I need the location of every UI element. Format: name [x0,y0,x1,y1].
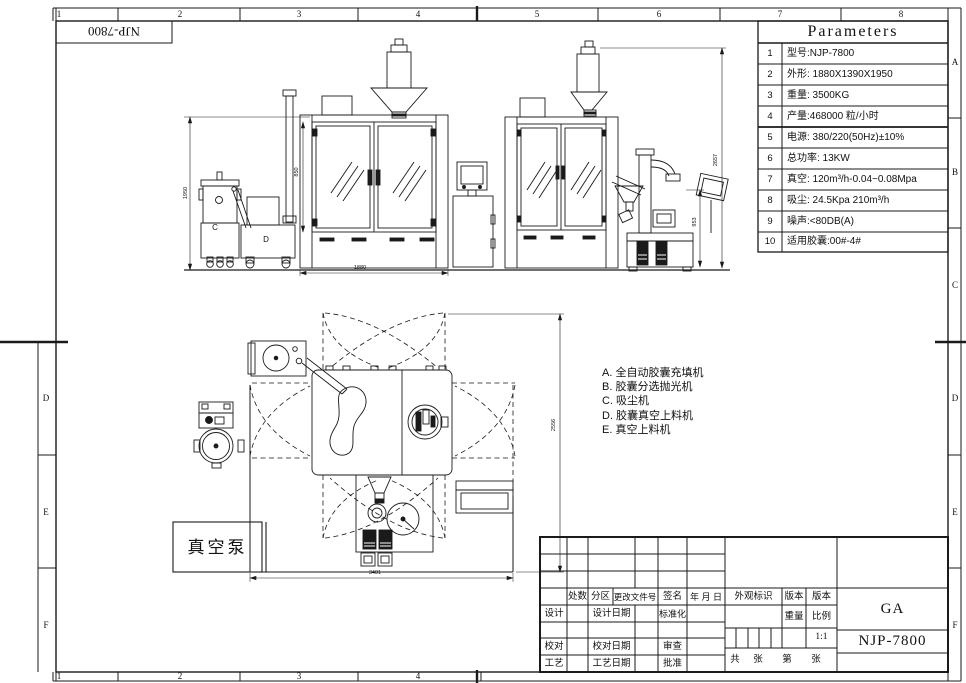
tb-design-date: 设计日期 [588,606,635,622]
tb-process: 工艺 [541,656,567,672]
tb-design: 设计 [541,606,567,622]
tb-check-date: 校对日期 [588,639,635,655]
machine-c-dust-collector [199,172,241,267]
corner-model-label: NJP-7800 [56,21,172,43]
tb-sheet-no: 第 [778,651,796,669]
param-row-num: 7 [758,169,782,190]
dim-plan-depth: 2556 [551,410,559,440]
param-row-num: 2 [758,64,782,85]
legend-item: A. 全自动胶囊充填机 [602,366,782,380]
tb-process-date: 工艺日期 [588,656,635,672]
zone-letter-d-left: D [39,392,53,404]
zone-letter-f-right: F [949,619,961,631]
top-ruler-5: 5 [527,8,547,21]
param-row-text: 电源: 380/220(50Hz)±10% [787,127,945,148]
bottom-ruler-4: 4 [408,670,428,682]
param-row-num: 4 [758,106,782,127]
dim-front-width: 1880 [345,265,375,272]
tb-sheet-zhang2: 张 [807,651,825,669]
param-row-text: 真空: 120m³/h-0.04~0.08Mpa [787,169,945,190]
tb-appearance: 外观标识 [725,589,782,605]
control-console [453,162,495,267]
param-row-num: 10 [758,232,782,252]
legend-item: B. 胶囊分选抛光机 [602,380,782,394]
tb-col-date: 年 月 日 [687,589,725,605]
param-row-text: 适用胶囊:00#-4# [787,232,945,252]
top-ruler-7: 7 [770,8,790,21]
dim-door-height: 850 [294,157,302,187]
tb-col-zone: 分区 [588,589,613,605]
machine-2-filling-cabinet [505,41,618,268]
legend-item: C. 吸尘机 [602,394,782,408]
machine-a-filling-machine [300,39,448,268]
param-row-num: 3 [758,85,782,106]
top-ruler-2: 2 [170,8,190,21]
zone-letter-e-right: E [949,506,961,518]
zone-letter-b-right: B [949,166,961,178]
param-row-text: 吸尘: 24.5Kpa 210m³/h [787,190,945,211]
param-row-text: 外形: 1880X1390X1950 [787,64,945,85]
bottom-ruler-2: 2 [170,670,190,682]
param-row-num: 1 [758,43,782,64]
tb-sheet-zhang1: 张 [749,651,767,669]
tb-col-qty: 处数 [567,589,588,605]
param-row-text: 噪声:<80DB(A) [787,211,945,232]
drawing-sheet: NJP-7800 1 2 3 4 5 6 7 8 1 2 3 4 A B C D… [0,0,966,683]
bottom-ruler-3: 3 [289,670,309,682]
zone-letter-f-left: F [39,619,53,631]
param-row-num: 6 [758,148,782,169]
door-swing-arcs [250,313,515,538]
zone-letter-c-right: C [949,279,961,291]
tb-model: NJP-7800 [837,630,948,653]
bottom-ruler-1: 1 [49,670,69,682]
zone-letter-e-left: E [39,506,53,518]
tb-scale-value: 1:1 [806,628,837,648]
plan-vacuum-feeder [194,402,244,468]
zone-letter-d-right: D [949,392,961,404]
dim-plan-width: 3481 [360,570,390,578]
param-row-text: 型号:NJP-7800 [787,43,945,64]
tb-check: 校对 [541,639,567,655]
tb-standardize: 标准化 [658,606,687,622]
machine-b-polisher [612,149,728,271]
tb-code: GA [837,588,948,630]
param-row-text: 产量:468000 粒/小时 [787,106,945,127]
legend-item: E. 真空上料机 [602,423,782,437]
top-ruler-1: 1 [49,8,69,21]
parameters-title: Parameters [758,21,948,43]
plan-polisher [248,341,347,394]
param-row-num: 5 [758,127,782,148]
top-ruler-4: 4 [408,8,428,21]
param-row-text: 重量: 3500KG [787,85,945,106]
dim-side-lower: 953 [692,207,700,237]
plan-dimensions [250,314,564,582]
plan-side-table [456,481,513,513]
plan-machine-body [312,366,452,475]
top-ruler-3: 3 [289,8,309,21]
tb-scale: 比例 [806,605,837,628]
param-row-num: 9 [758,211,782,232]
tb-version-a: 版本 [782,589,806,605]
top-ruler-8: 8 [891,8,911,21]
tb-approve: 批准 [658,656,687,672]
tb-version-b: 版本 [806,589,837,605]
tb-sheet-total: 共 [726,651,744,669]
dim-front-height: 1950 [183,178,191,208]
tb-col-change-no: 更改文件号 [612,589,658,605]
zone-letter-a-right: A [949,56,961,68]
vacuum-pump-label: 真空泵 [173,522,262,572]
top-ruler-6: 6 [649,8,669,21]
machine-c-label: C [207,222,223,234]
plan-lower-assembly [356,475,433,566]
tb-col-sign: 签名 [658,589,687,605]
legend-item: D. 胶囊真空上料机 [602,409,782,423]
legend: A. 全自动胶囊充填机 B. 胶囊分选抛光机 C. 吸尘机 D. 胶囊真空上料机… [602,366,782,446]
machine-d-label: D [258,234,274,246]
tb-review: 审查 [658,639,687,655]
param-row-text: 总功率: 13KW [787,148,945,169]
dim-side-height: 2657 [713,145,721,175]
param-row-num: 8 [758,190,782,211]
tb-weight: 重量 [782,605,806,628]
